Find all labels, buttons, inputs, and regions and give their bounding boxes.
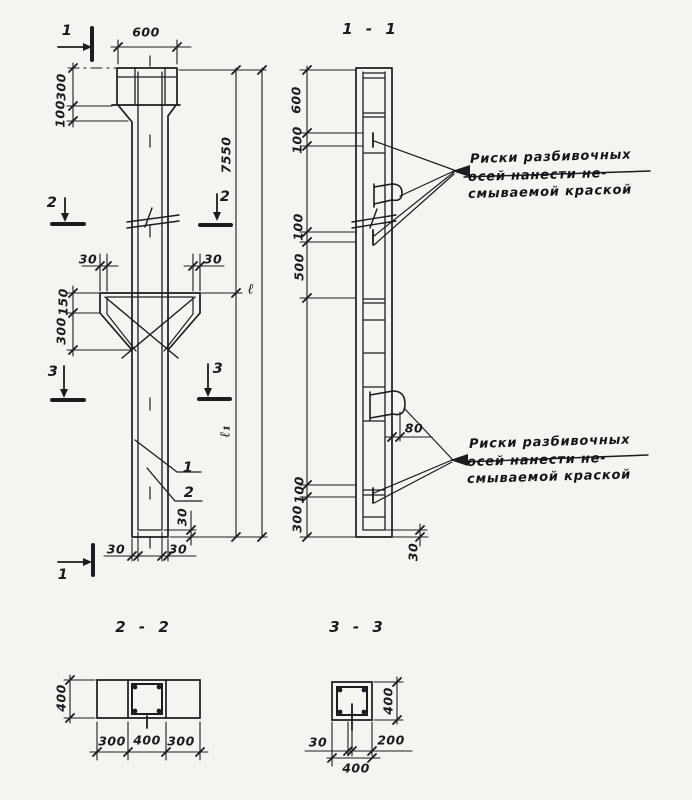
dim-s33-edge: 200	[377, 733, 405, 748]
section-marker-2-left-label: 2	[47, 195, 58, 211]
dim-s11-100-bottom: 100	[292, 476, 307, 504]
dim-corbel-offset-left: 30	[79, 252, 97, 267]
dim-head-taper: 100	[53, 100, 68, 128]
dim-length-lower: ℓ₁	[218, 424, 235, 437]
dim-head-depth: 300	[54, 73, 69, 101]
dim-corbel-offset-right: 30	[204, 252, 222, 267]
section-marker-1-top-label: 1	[62, 23, 73, 39]
section-marker-1-bottom-label: 1	[58, 567, 69, 583]
dim-s11-100-top: 100	[290, 126, 305, 154]
callout-rebar-1-label: 1	[183, 460, 194, 476]
dim-s22-center: 400	[133, 733, 161, 748]
dim-s33-width: 400	[342, 761, 370, 776]
dim-corbel-slope: 300	[54, 317, 69, 345]
dim-s11-cover-bottom: 30	[406, 543, 421, 561]
column-elevation-view	[52, 28, 267, 575]
section-3-3-view	[305, 677, 412, 766]
dim-s22-right: 300	[167, 734, 195, 749]
dim-s11-300: 300	[290, 505, 305, 533]
section-2-2-title: 2 - 2	[115, 618, 173, 636]
callout-rebar-2-label: 2	[184, 485, 195, 501]
drawing-linework	[0, 0, 692, 800]
section-marker-3-left-label: 3	[48, 364, 59, 380]
dim-s22-height: 400	[54, 684, 69, 712]
dim-loop-offset: 80	[405, 421, 423, 436]
dim-s33-offset: 30	[309, 735, 327, 750]
dim-s11-100-mid: 100	[291, 213, 306, 241]
dim-length-upper: 7550	[219, 137, 234, 174]
dim-top-width: 600	[132, 25, 160, 40]
drawing-sheet: 1 600 300 100 2 2 30 30 150 300 3 3 7550…	[0, 0, 692, 800]
rebar-dots-2-2	[133, 685, 162, 714]
section-marker-2-right-label: 2	[220, 189, 231, 205]
dim-cover-left: 30	[107, 542, 125, 557]
dim-s33-height: 400	[381, 687, 396, 715]
section-3-3-title: 3 - 3	[329, 618, 387, 636]
note-leader-arrowheads	[450, 165, 470, 466]
section-1-1-title: 1 - 1	[342, 20, 400, 38]
dim-length-total: ℓ	[248, 282, 254, 299]
dim-s22-left: 300	[98, 734, 126, 749]
section-marker-3-right-label: 3	[213, 361, 224, 377]
dim-corbel-face: 150	[56, 288, 71, 316]
dim-s11-600: 600	[289, 86, 304, 114]
dim-cover-bottom-rotated: 30	[175, 508, 190, 526]
dim-cover-right: 30	[169, 542, 187, 557]
dim-s11-500: 500	[292, 253, 307, 281]
